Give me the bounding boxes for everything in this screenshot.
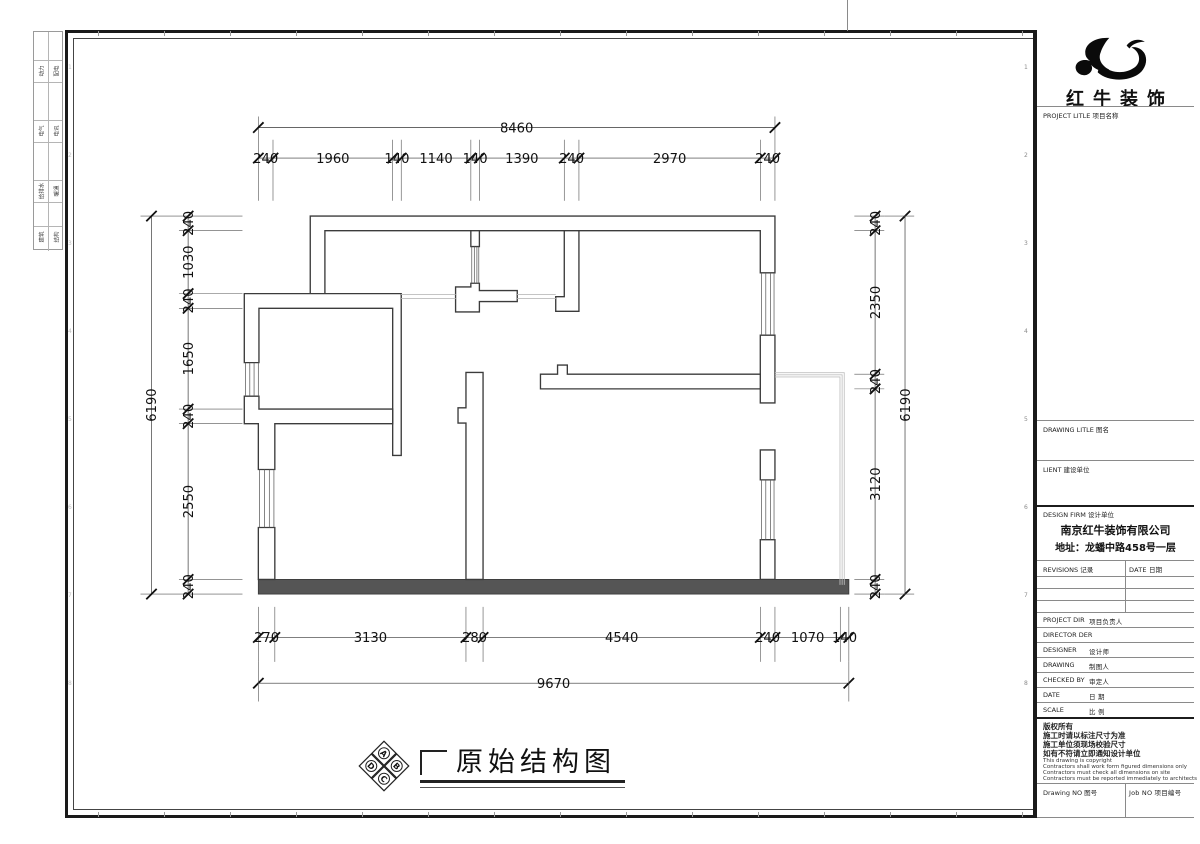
row-cn: 比 例	[1089, 706, 1105, 716]
border-tick	[98, 31, 99, 36]
stamp-text: 电气	[37, 125, 45, 136]
opening-hall-header	[401, 295, 455, 299]
job-no-label: Job NO 项目编号	[1129, 787, 1181, 797]
wall-top-and-right-upper	[310, 216, 775, 294]
wall-kitchen-partition-top	[471, 231, 480, 247]
tb-line	[1037, 600, 1194, 601]
tb-line	[1037, 627, 1194, 628]
wall-left-bottom	[258, 527, 274, 579]
border-tick	[428, 31, 429, 36]
stamp-text: 电讯	[52, 125, 60, 136]
zone-number: 6	[68, 504, 72, 511]
dim-text: 2550	[182, 485, 197, 518]
label-bracket-v	[420, 750, 422, 775]
dim-text: 1070	[791, 631, 824, 646]
zone-number: 5	[1024, 416, 1028, 423]
wall-right-bottom-block	[760, 540, 775, 580]
stamp-text: 给排水	[38, 183, 46, 200]
window-living-right	[762, 480, 775, 540]
dim-text: 4540	[605, 631, 638, 646]
zone-number: 8	[68, 680, 72, 687]
border-tick	[890, 31, 891, 36]
balcony-group	[775, 373, 844, 585]
dim-text: 140	[463, 152, 488, 167]
dim-text: 2970	[653, 152, 686, 167]
row-cn: 设计师	[1089, 646, 1109, 656]
window-bedroom-left	[246, 363, 259, 397]
border-tick	[428, 812, 429, 817]
wall-kitchen-right	[556, 231, 579, 312]
border-tick	[98, 812, 99, 817]
label-bracket-h	[420, 750, 447, 752]
bottom-row-divider	[1125, 783, 1126, 817]
dim-text: 280	[462, 631, 487, 646]
design-firm-address: 地址：龙蟠中路458号一层	[1037, 539, 1194, 554]
client-label: LIENT 建设单位	[1043, 464, 1090, 474]
zone-number: 4	[68, 328, 72, 335]
dim-text: 240	[869, 211, 884, 236]
walls-group	[244, 216, 849, 594]
dim-text: 1030	[182, 245, 197, 278]
wall-left-middle	[244, 396, 392, 469]
design-firm-name: 南京红牛装饰有限公司	[1037, 522, 1194, 538]
border-tick	[494, 31, 495, 36]
dim-text: 1390	[505, 152, 538, 167]
tb-line	[1037, 702, 1194, 703]
dim-text: 1650	[182, 342, 197, 375]
diamond-cells: A B C D	[359, 741, 408, 790]
zone-number: 3	[1024, 240, 1028, 247]
stamp-cell: 动力	[34, 60, 49, 82]
stamp-line	[34, 142, 62, 143]
border-tick	[1022, 812, 1023, 817]
tb-line	[1037, 420, 1194, 421]
dim-text: 240	[869, 574, 884, 599]
tb-line-thick	[1037, 505, 1194, 507]
zone-number: 1	[68, 64, 72, 71]
border-tick	[560, 812, 561, 817]
stamp-line	[34, 82, 62, 83]
dim-text: 240	[253, 152, 278, 167]
zone-number: 5	[68, 416, 72, 423]
border-tick	[956, 812, 957, 817]
tb-line-thick	[1037, 717, 1194, 719]
dim-text: 140	[384, 152, 409, 167]
border-tick	[758, 31, 759, 36]
dim-text: 240	[182, 574, 197, 599]
border-tick	[164, 31, 165, 36]
border-tick	[362, 812, 363, 817]
title-block: 红牛装饰 PROJECT LITLE 项目名称 DRAWING LITLE 图名…	[1037, 30, 1194, 818]
tb-line	[1037, 642, 1194, 643]
stamp-text: 配电	[52, 65, 60, 76]
border-tick	[824, 812, 825, 817]
fold-mark	[847, 0, 848, 31]
window-bottomleft-room	[260, 469, 274, 527]
tb-line	[1037, 560, 1194, 561]
tb-line	[1037, 106, 1194, 107]
stamp-cell: 电讯	[49, 120, 64, 142]
zone-number: 1	[1024, 64, 1028, 71]
drawing-title: 原始结构图	[456, 740, 616, 779]
row-en: DATE	[1043, 691, 1060, 699]
diamond-logo: A B C D	[356, 738, 412, 794]
project-title-label: PROJECT LITLE 项目名称	[1043, 110, 1118, 120]
stamp-cell: 电气	[34, 120, 49, 142]
border-tick	[230, 31, 231, 36]
discipline-stamp-strip: 动力 配电 电气 电讯 给排水 暖通 建筑 结构	[33, 31, 63, 250]
stamp-cell: 结构	[49, 226, 64, 248]
balcony-glazing	[775, 373, 844, 585]
row-cn: 制图人	[1089, 661, 1109, 671]
dim-text-overall: 9670	[537, 677, 570, 692]
stamp-cell: 暖通	[49, 180, 64, 202]
stamp-text: 暖通	[52, 185, 60, 196]
dim-text: 240	[182, 404, 197, 429]
tb-line	[1037, 817, 1194, 818]
date-col-label: DATE 日期	[1129, 564, 1162, 574]
row-en: DIRECTOR DER	[1043, 631, 1092, 639]
tb-line	[1037, 657, 1194, 658]
row-en: DESIGNER	[1043, 646, 1077, 654]
wall-right-middle	[760, 335, 775, 403]
drawing-title-label: DRAWING LITLE 图名	[1043, 424, 1109, 434]
stamp-text: 动力	[37, 65, 45, 76]
border-tick	[626, 812, 627, 817]
border-tick	[560, 31, 561, 36]
drawing-no-label: Drawing NO 图号	[1043, 787, 1097, 797]
border-tick	[626, 31, 627, 36]
border-tick	[758, 812, 759, 817]
row-en: SCALE	[1043, 706, 1064, 714]
dim-text: 240	[182, 288, 197, 313]
dim-text-overall: 6190	[145, 388, 160, 421]
border-tick	[164, 812, 165, 817]
row-en: DRAWING	[1043, 661, 1075, 669]
border-tick	[362, 31, 363, 36]
border-tick	[296, 812, 297, 817]
dim-text: 3130	[354, 631, 387, 646]
row-en: PROJECT DIR	[1043, 616, 1085, 624]
zone-number: 2	[1024, 152, 1028, 159]
floor-plan: 2401960140114014013902402970240846027031…	[124, 106, 927, 720]
opening-kitchen-header	[517, 295, 555, 299]
dim-text: 3120	[869, 467, 884, 500]
design-firm-label: DESIGN FIRM 设计单位	[1043, 509, 1114, 519]
title-underline-2	[420, 787, 625, 788]
wall-bottom	[258, 579, 848, 594]
border-tick	[956, 31, 957, 36]
zone-number: 4	[1024, 328, 1028, 335]
dim-text: 240	[559, 152, 584, 167]
revisions-divider	[1125, 560, 1126, 612]
border-tick	[1022, 31, 1023, 36]
row-en: CHECKED BY	[1043, 676, 1085, 684]
stamp-line	[34, 202, 62, 203]
wall-right-pier	[760, 450, 775, 480]
tb-line	[1037, 576, 1194, 577]
row-cn: 项目负责人	[1089, 616, 1123, 626]
copyright-en: Contractors must be reported immediately…	[1043, 776, 1197, 782]
tb-line	[1037, 687, 1194, 688]
drawing-sheet: { "sheet": { "zone_numbers": ["1","2","3…	[0, 0, 1200, 844]
wall-living-bedroom	[540, 365, 760, 389]
dim-text: 1140	[419, 152, 452, 167]
stamp-text: 结构	[52, 231, 60, 242]
zone-number: 2	[68, 152, 72, 159]
stamp-text: 建筑	[37, 231, 45, 242]
dim-text: 2350	[869, 286, 884, 319]
dim-text-overall: 6190	[899, 388, 914, 421]
tb-line	[1037, 588, 1194, 589]
border-tick	[692, 812, 693, 817]
tb-line	[1037, 460, 1194, 461]
tb-line	[1037, 783, 1194, 784]
wall-partition-middle	[458, 372, 483, 579]
title-underline-1	[420, 780, 625, 783]
stamp-cell: 建筑	[34, 226, 49, 248]
border-tick	[494, 812, 495, 817]
dim-text: 270	[254, 631, 279, 646]
tb-line	[1037, 612, 1194, 613]
zone-number: 7	[68, 592, 72, 599]
stamp-cell: 给排水	[34, 180, 49, 202]
dim-text: 240	[182, 211, 197, 236]
border-tick	[692, 31, 693, 36]
zone-number: 6	[1024, 504, 1028, 511]
dim-text: 240	[755, 631, 780, 646]
brand-name: 红牛装饰	[1037, 85, 1194, 111]
dim-text: 140	[832, 631, 857, 646]
zone-number: 7	[1024, 592, 1028, 599]
border-tick	[890, 812, 891, 817]
window-topright-bedroom	[762, 273, 775, 335]
zone-number: 3	[68, 240, 72, 247]
row-cn: 日 期	[1089, 691, 1105, 701]
border-tick	[824, 31, 825, 36]
dim-text-overall: 8460	[500, 121, 533, 136]
dim-text: 240	[869, 369, 884, 394]
revisions-label: REVISIONS 记录	[1043, 564, 1093, 574]
stamp-cell: 配电	[49, 60, 64, 82]
dim-text: 240	[755, 152, 780, 167]
window-kitchen-partition	[472, 247, 479, 284]
row-cn: 审定人	[1089, 676, 1109, 686]
dim-text: 1960	[316, 152, 349, 167]
border-tick	[230, 812, 231, 817]
border-tick	[296, 31, 297, 36]
wall-flue-column	[456, 283, 518, 312]
tb-line	[1037, 672, 1194, 673]
zone-number: 8	[1024, 680, 1028, 687]
bull-logo	[1065, 36, 1169, 84]
